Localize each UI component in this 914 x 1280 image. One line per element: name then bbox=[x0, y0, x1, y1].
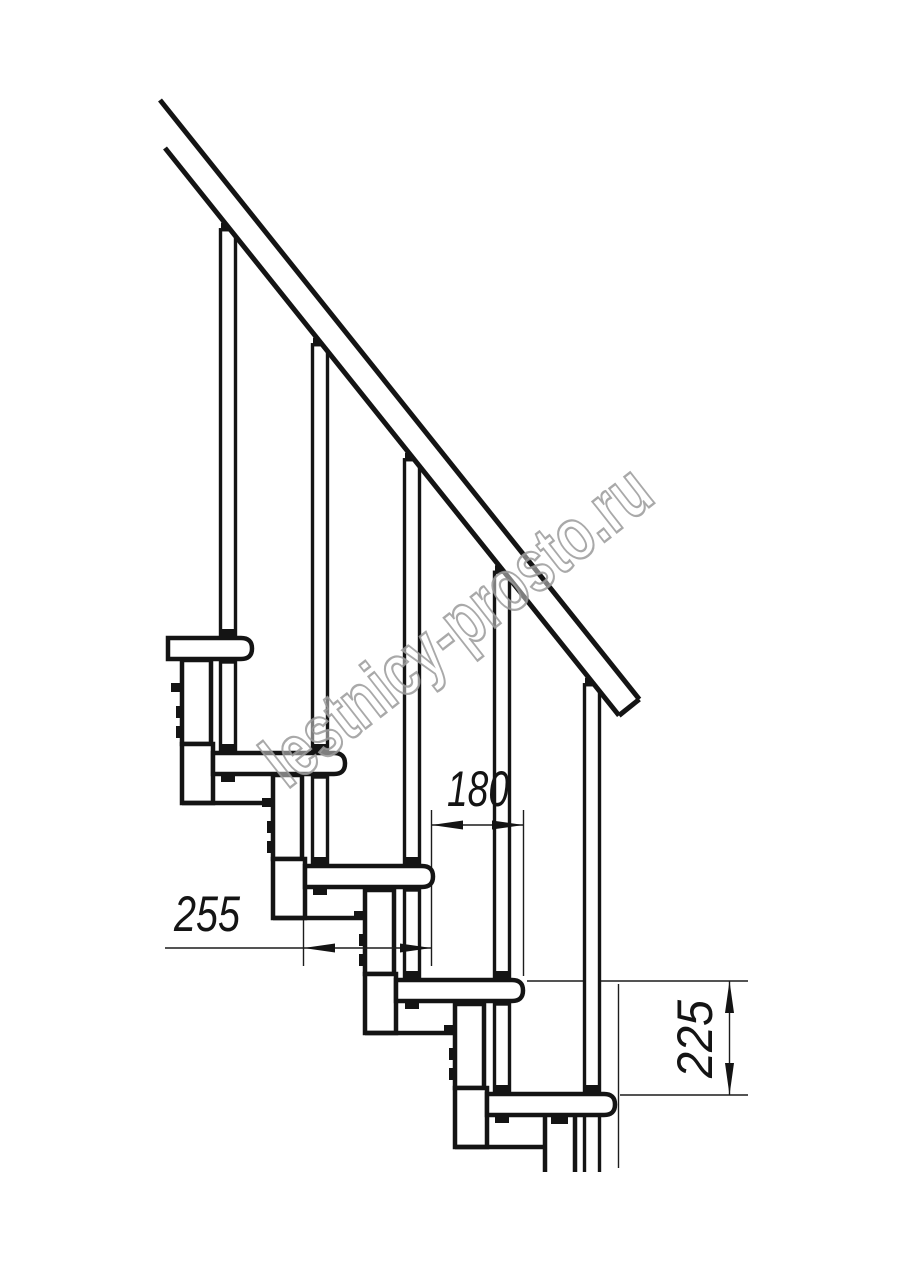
bolt-nub bbox=[449, 1048, 456, 1060]
connector-tab bbox=[171, 683, 183, 692]
bolt-nub bbox=[449, 1068, 456, 1080]
baluster-1 bbox=[221, 223, 236, 638]
tread-1 bbox=[168, 638, 252, 659]
bolt-nub bbox=[267, 841, 274, 853]
bolt-nub bbox=[359, 954, 366, 966]
connector-tab bbox=[262, 798, 274, 807]
dimension-label-rise: 225 bbox=[667, 1000, 723, 1079]
bolt-nub bbox=[176, 726, 183, 738]
bolt-nub bbox=[359, 934, 366, 946]
baluster-5 bbox=[585, 678, 600, 1094]
tread-4 bbox=[396, 980, 523, 1001]
drawing-canvas: 180 255 225 lestnicy-prosto.ru bbox=[0, 0, 914, 1280]
bolt-nub bbox=[267, 821, 274, 833]
dimension-label-depth: 255 bbox=[173, 886, 240, 942]
tread-3 bbox=[305, 866, 433, 887]
staircase-technical-drawing: 180 255 225 lestnicy-prosto.ru bbox=[0, 0, 914, 1280]
bolt-nub bbox=[176, 706, 183, 718]
connector-tab bbox=[444, 1025, 456, 1034]
connector-tab bbox=[354, 911, 366, 920]
tread-5 bbox=[487, 1094, 615, 1115]
dimension-label-run: 180 bbox=[447, 761, 509, 817]
